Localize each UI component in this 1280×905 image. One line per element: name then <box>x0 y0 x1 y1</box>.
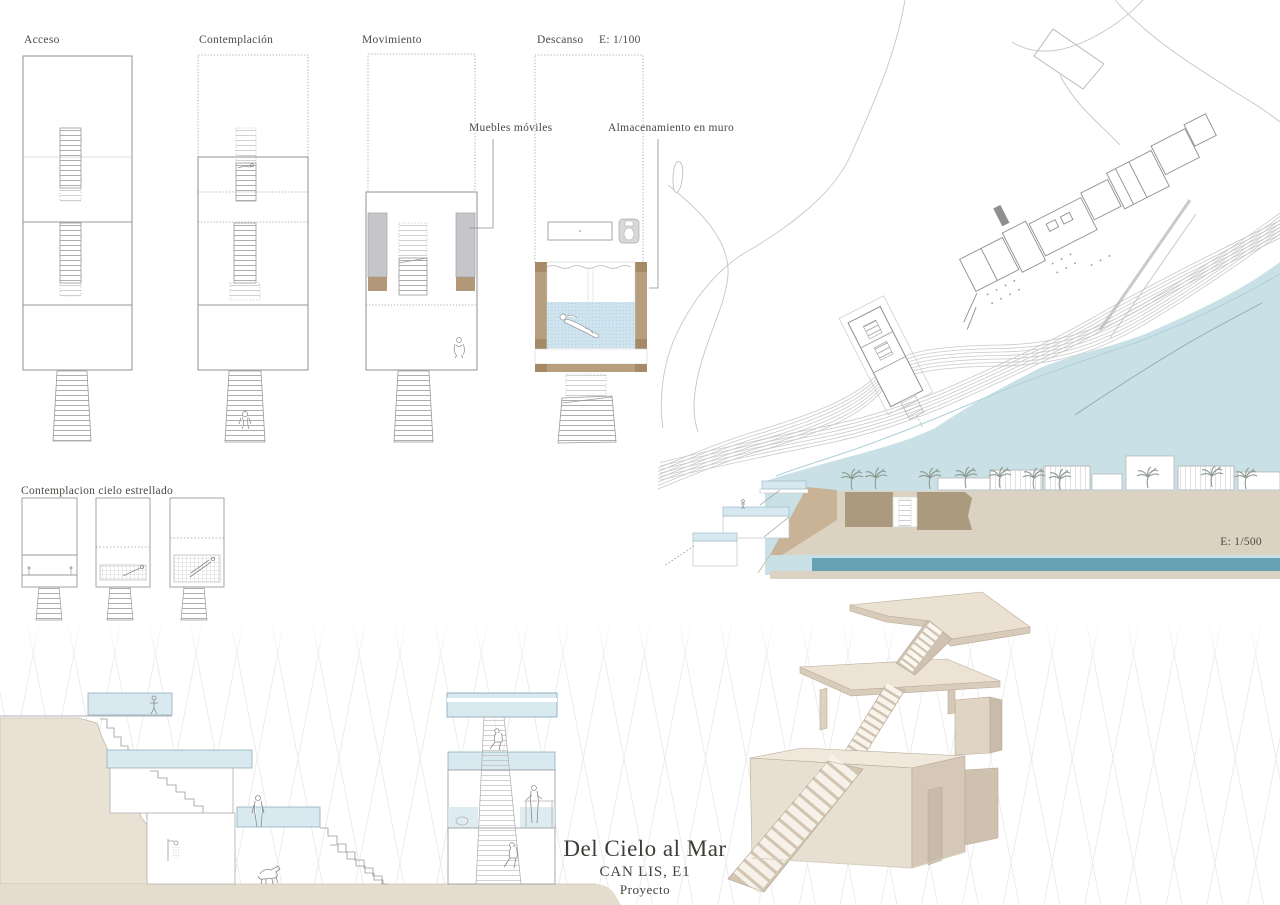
entry-stair <box>394 371 433 442</box>
stair <box>60 128 81 188</box>
entry-stair <box>53 371 91 441</box>
project-building-plan <box>839 296 945 440</box>
entry-stair <box>558 396 616 443</box>
night-series-label: Contemplacion cielo estrellado <box>21 485 173 497</box>
night-series-drawing <box>10 478 240 638</box>
night-plan-2 <box>96 498 150 620</box>
scale-label-1-100: E: 1/100 <box>599 34 641 46</box>
site-plan-and-section-drawing <box>630 0 1280 585</box>
stair <box>399 258 427 295</box>
plan-label-contemplacion: Contemplación <box>199 34 273 46</box>
glass-box-top <box>447 693 557 717</box>
can-lis-complex-plan <box>924 103 1244 329</box>
plan-movimiento <box>366 54 477 442</box>
floor-plans-drawing <box>0 0 680 460</box>
annotation-mobile-furniture: Muebles móviles <box>469 122 552 134</box>
plan-descanso <box>535 55 647 443</box>
presentation-board: Acceso Contemplación Movimiento Descanso… <box>0 0 1280 905</box>
title-block: Del Cielo al Mar CAN LIS, E1 Proyecto <box>495 836 795 898</box>
mobile-furniture <box>368 213 387 277</box>
section-excavation <box>845 492 972 530</box>
annotation-wall-storage: Almacenamiento en muro <box>608 122 734 134</box>
scale-label-1-500: E: 1/500 <box>1150 536 1262 548</box>
stair <box>236 163 256 201</box>
plan-acceso <box>23 56 132 441</box>
dog-figure <box>258 866 280 884</box>
glass-band-mid <box>107 750 252 768</box>
leader-wall-storage <box>649 139 658 288</box>
night-plan-3 <box>170 498 224 620</box>
site-road <box>1100 200 1190 330</box>
plan-label-movimiento: Movimiento <box>362 34 422 46</box>
patio-columns <box>986 236 1110 314</box>
sea-section-band <box>812 558 1280 571</box>
section-ground <box>758 487 1280 579</box>
wall <box>535 262 547 349</box>
stair <box>60 223 81 283</box>
glass-band-right <box>237 807 320 827</box>
stair <box>234 223 256 283</box>
wall <box>635 262 647 349</box>
glass-box-top <box>88 693 172 715</box>
door-opening <box>928 787 942 865</box>
plan-label-acceso: Acceso <box>24 34 60 46</box>
mobile-furniture <box>456 213 475 277</box>
project-title: Del Cielo al Mar <box>495 836 795 862</box>
plan-contemplacion <box>198 55 308 442</box>
plan-label-descanso: Descanso <box>537 34 583 46</box>
night-plan-1 <box>22 498 77 620</box>
project-subtitle: CAN LIS, E1 <box>495 864 795 881</box>
entry-stair <box>225 371 265 442</box>
project-phase: Proyecto <box>495 882 795 898</box>
